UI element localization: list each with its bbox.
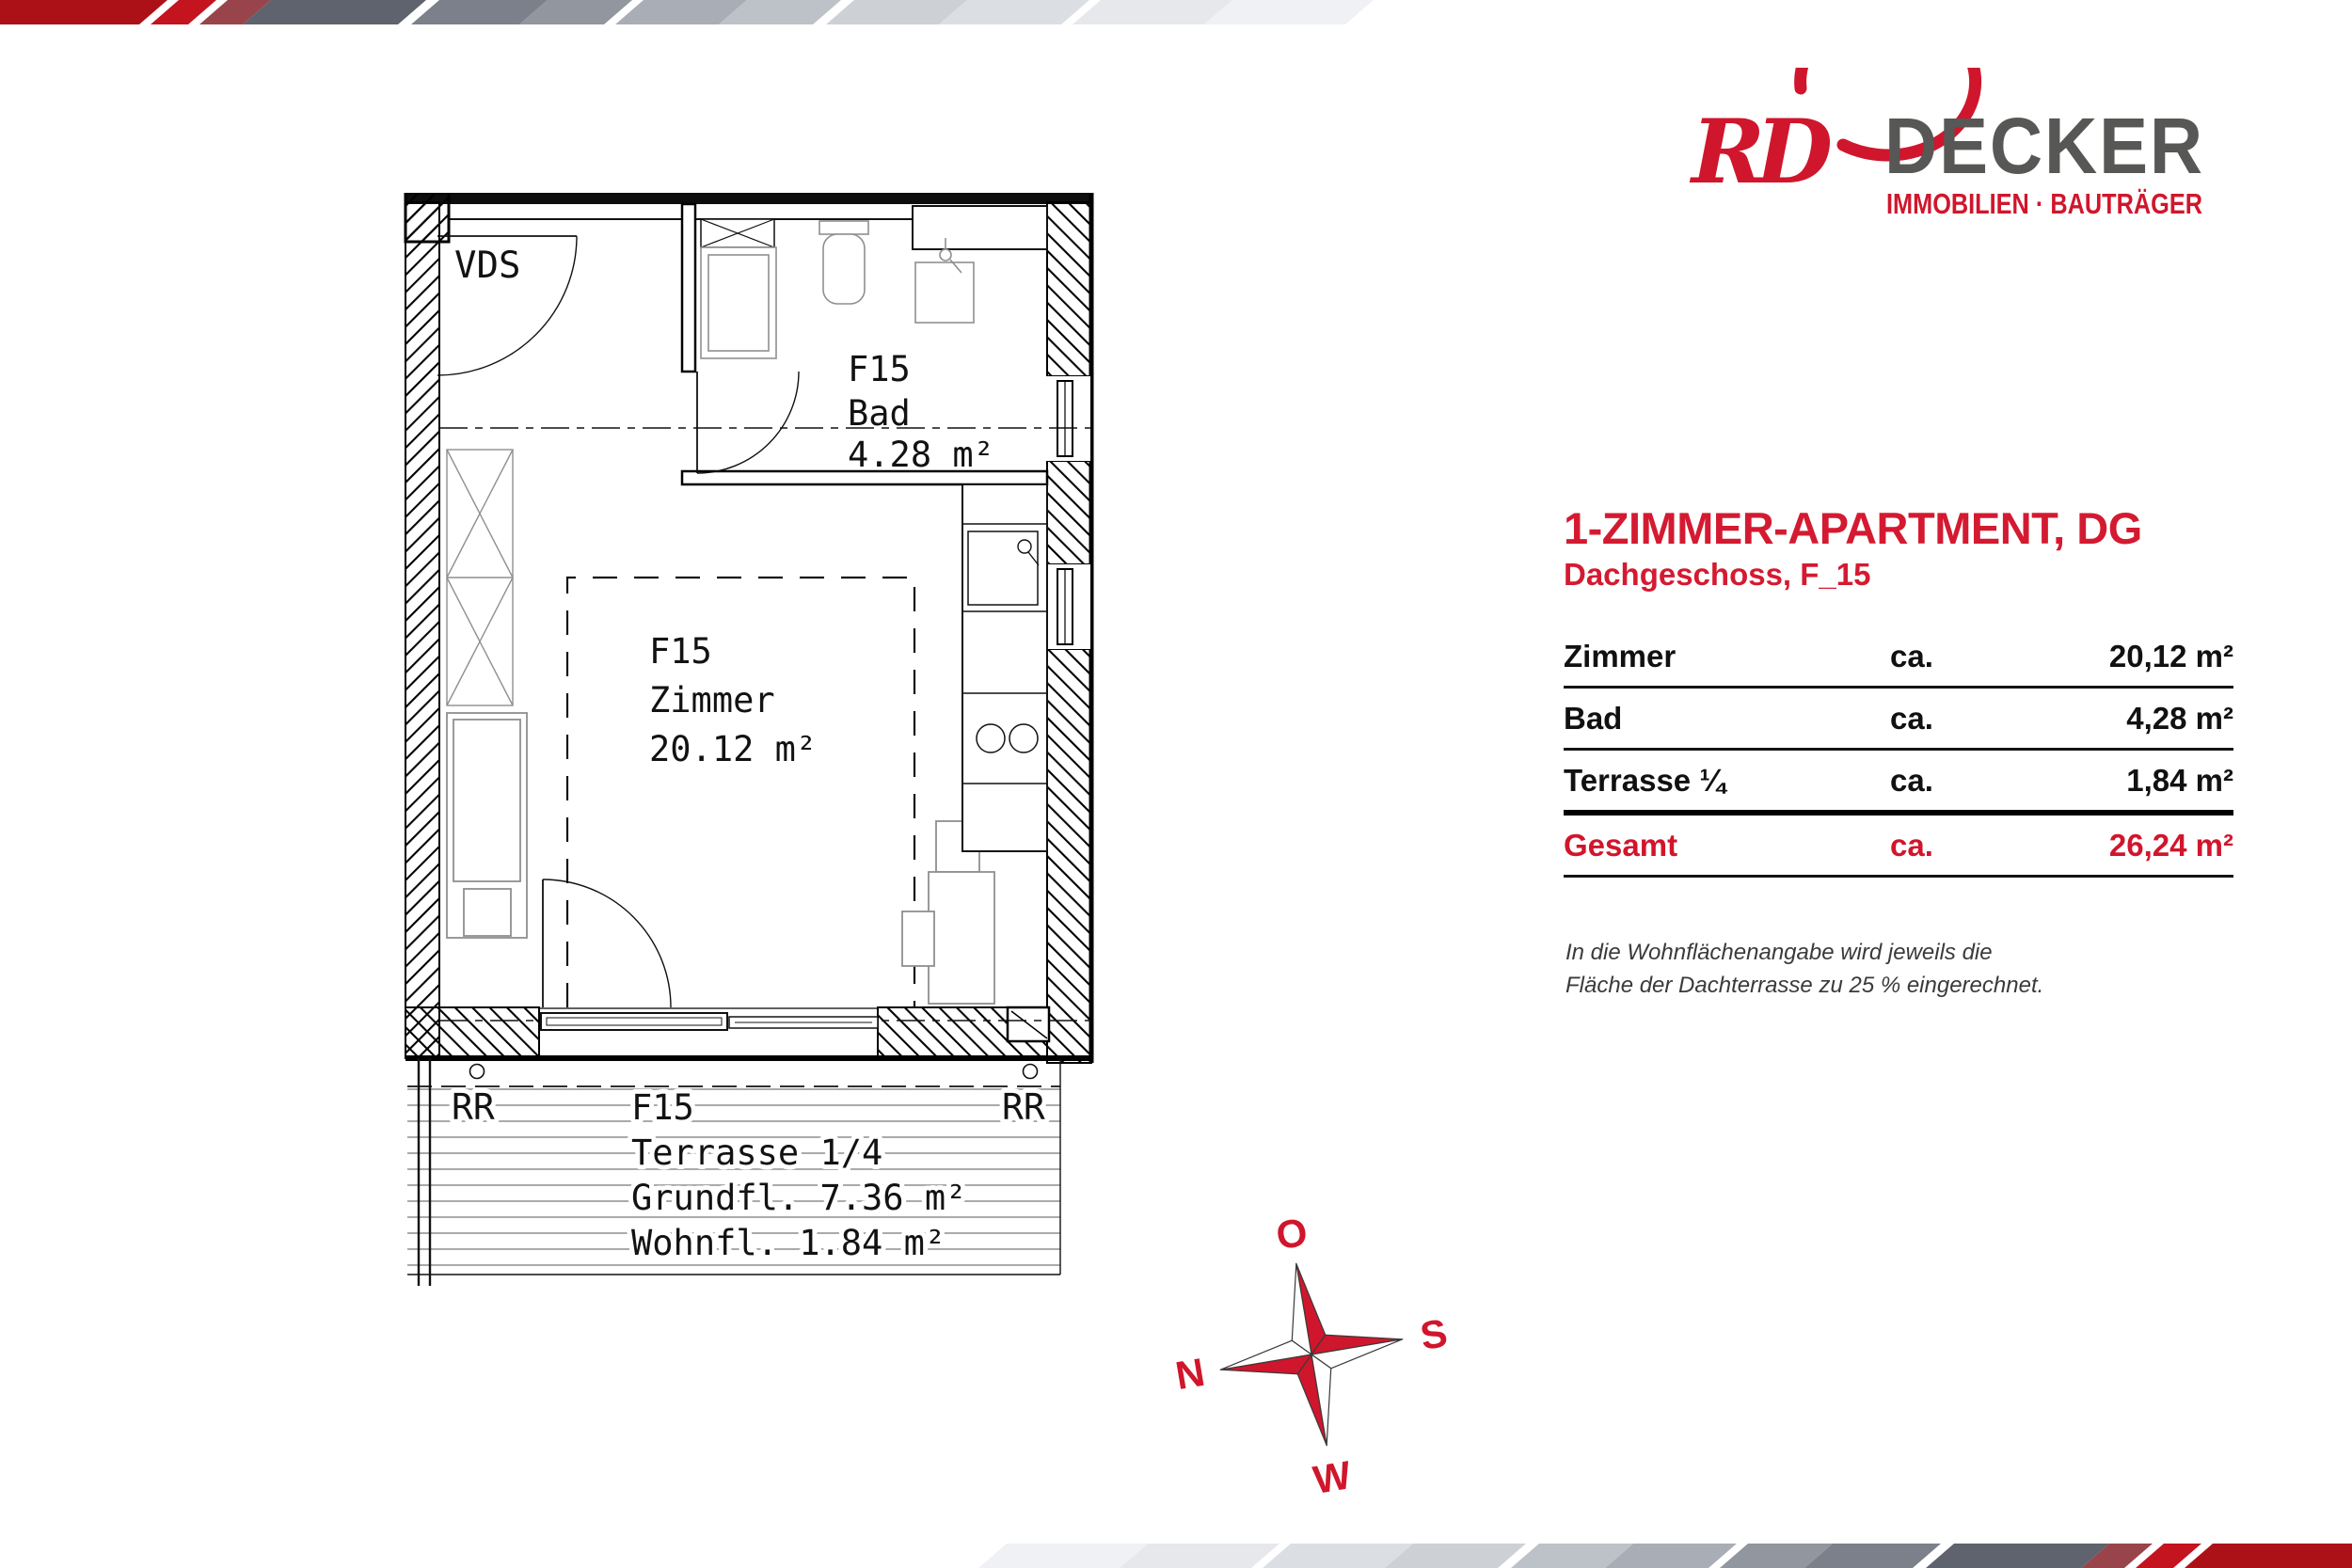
compass-west-label: W (1310, 1452, 1354, 1502)
row-label: Terrasse ¼ (1564, 763, 1890, 799)
expose-page: VDS F15 Bad 4.28 m² F15 Zimmer 20.12 m² … (0, 0, 2352, 1568)
terrace-unit-label: F15 (631, 1087, 694, 1128)
row-value: 20,12 m² (2031, 639, 2233, 674)
room-name-label: Zimmer (649, 680, 775, 721)
kitchen-sink-icon (968, 531, 1038, 605)
row-approx: ca. (1890, 828, 2031, 863)
note-line: In die Wohnflächenangabe wird jeweils di… (1565, 937, 2224, 970)
row-label: Bad (1564, 701, 1890, 736)
logo-monogram: RD (1689, 101, 1833, 204)
washing-machine-icon (701, 247, 776, 358)
kitchenette-icon (962, 484, 1047, 851)
floor-plan-drawing: VDS F15 Bad 4.28 m² F15 Zimmer 20.12 m² … (400, 193, 1096, 1293)
row-approx: ca. (1890, 639, 2031, 674)
terrace-door-icon (543, 879, 671, 1007)
row-value: 1,84 m² (2031, 763, 2233, 799)
row-label: Gesamt (1564, 828, 1890, 863)
sliding-door-icon (541, 1013, 878, 1030)
rainpipe-label-left: RR (452, 1086, 495, 1128)
right-wall (1047, 202, 1091, 376)
bottom-stripe-decoration (969, 1544, 2352, 1568)
bath-unit-label: F15 (848, 349, 911, 389)
compass-east-label: O (1273, 1212, 1311, 1258)
row-value: 4,28 m² (2031, 701, 2233, 736)
compass-south-label: S (1417, 1310, 1450, 1358)
compass-north-label: N (1172, 1350, 1208, 1398)
bath-sink-icon (915, 238, 974, 323)
brand-tagline: IMMOBILIEN · BAUTRÄGER (1886, 187, 2202, 220)
bath-window-icon (1046, 376, 1090, 461)
company-logo: RD DECKER IMMOBILIEN · BAUTRÄGER (1654, 68, 2228, 232)
terrace-ground-area-label: Grundfl. 7.36 m² (631, 1178, 966, 1218)
table-row-bad: Bad ca. 4,28 m² (1564, 689, 2233, 751)
vent-box-icon (701, 219, 774, 247)
living-area-note: In die Wohnflächenangabe wird jeweils di… (1565, 937, 2224, 1003)
bath-name-label: Bad (848, 393, 911, 434)
table-row-terrasse: Terrasse ¼ ca. 1,84 m² (1564, 751, 2233, 816)
terrace-living-area-label: Wohnfl. 1.84 m² (631, 1223, 946, 1263)
row-value: 26,24 m² (2031, 828, 2233, 863)
drain-icon (1024, 1065, 1038, 1079)
chair-icon (902, 911, 934, 966)
brand-name: DECKER (1884, 102, 2204, 190)
compass-star-icon (1205, 1248, 1418, 1461)
bath-wall (682, 204, 695, 372)
top-stripe-decoration (0, 0, 1383, 24)
page-subtitle: Dachgeschoss, F_15 (1564, 557, 2279, 593)
note-line: Fläche der Dachterrasse zu 25 % eingerec… (1565, 970, 2224, 1003)
toilet-icon (819, 221, 868, 304)
row-approx: ca. (1890, 763, 2031, 799)
drain-icon (470, 1065, 485, 1079)
compass-rose: O S W N (1168, 1212, 1470, 1513)
kitchen-window-icon (1046, 564, 1090, 649)
page-title: 1-ZIMMER-APARTMENT, DG (1564, 502, 2279, 554)
terrace-name-label: Terrasse 1/4 (631, 1132, 882, 1173)
bath-door-icon (697, 372, 799, 473)
area-table: Zimmer ca. 20,12 m² Bad ca. 4,28 m² Terr… (1564, 626, 2233, 878)
row-approx: ca. (1890, 701, 2031, 736)
room-area-label: 20.12 m² (649, 729, 817, 769)
row-label: Zimmer (1564, 639, 1890, 674)
fixtures (447, 206, 1047, 1004)
table-row-zimmer: Zimmer ca. 20,12 m² (1564, 626, 2233, 689)
top-wall (405, 193, 1092, 204)
bath-area-label: 4.28 m² (848, 435, 994, 475)
roof-pitch-dashed-line (567, 578, 914, 1007)
room-unit-label: F15 (649, 631, 712, 672)
bottom-wall (405, 1007, 539, 1058)
rainpipe-label-right: RR (1002, 1086, 1045, 1128)
wardrobe-icon (447, 450, 513, 705)
bed-icon (447, 713, 527, 938)
left-wall (405, 202, 439, 1058)
entry-room-label: VDS (454, 245, 520, 287)
shelf-icon (913, 206, 1047, 249)
table-row-gesamt: Gesamt ca. 26,24 m² (1564, 816, 2233, 878)
corner-pillar (405, 193, 449, 242)
